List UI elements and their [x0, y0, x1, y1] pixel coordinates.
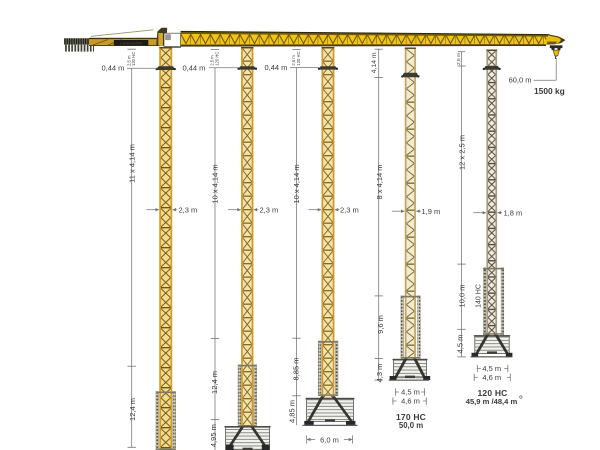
svg-text:4,5 m: 4,5 m	[482, 364, 501, 373]
svg-text:140 HC: 140 HC	[476, 284, 483, 308]
svg-text:LIEBHERR: LIEBHERR	[120, 40, 143, 45]
svg-text:1500 kg: 1500 kg	[534, 86, 565, 96]
svg-text:2,5 m: 2,5 m	[456, 53, 462, 65]
svg-text:11 x 4,14 m: 11 x 4,14 m	[127, 144, 136, 183]
svg-text:0,44 m: 0,44 m	[102, 63, 125, 72]
svg-text:12,4 m: 12,4 m	[210, 371, 219, 394]
svg-text:12 x 2,5 m: 12 x 2,5 m	[458, 135, 467, 170]
svg-text:4,95 m: 4,95 m	[209, 424, 218, 447]
svg-text:8,85 m: 8,85 m	[292, 358, 301, 381]
svg-text:8 x 4,14 m: 8 x 4,14 m	[375, 164, 384, 199]
svg-text:10 x 4,14 m: 10 x 4,14 m	[211, 164, 220, 203]
svg-text:4,6 m: 4,6 m	[482, 373, 501, 382]
svg-text:4,14 m: 4,14 m	[371, 52, 378, 73]
svg-text:6,0 m: 6,0 m	[320, 435, 339, 444]
svg-text:1,9 m: 1,9 m	[422, 207, 441, 216]
svg-text:2,3 m: 2,3 m	[179, 205, 198, 214]
svg-text:120 HC: 120 HC	[214, 52, 219, 66]
svg-text:4,5 m: 4,5 m	[401, 388, 420, 397]
svg-text:2,3 m: 2,3 m	[340, 205, 359, 214]
svg-text:12,4 m: 12,4 m	[128, 398, 137, 421]
svg-text:50,0 m: 50,0 m	[399, 421, 423, 430]
svg-text:9,6 m: 9,6 m	[376, 315, 385, 334]
svg-text:10,0 m: 10,0 m	[458, 285, 467, 308]
svg-text:0,44 m: 0,44 m	[265, 63, 288, 72]
svg-text:120 HC: 120 HC	[131, 52, 136, 66]
svg-text:4,3 m: 4,3 m	[375, 364, 384, 383]
svg-text:2,3 m: 2,3 m	[260, 205, 279, 214]
svg-text:60,0 m: 60,0 m	[509, 76, 532, 85]
svg-text:120 HC: 120 HC	[296, 51, 301, 65]
svg-text:4,85 m: 4,85 m	[288, 400, 297, 423]
svg-text:0,44 m: 0,44 m	[183, 63, 206, 72]
svg-text:10 x 4,14 m: 10 x 4,14 m	[292, 164, 301, 203]
svg-text:4,6 m: 4,6 m	[401, 397, 420, 406]
svg-text:1,8 m: 1,8 m	[504, 208, 523, 217]
svg-text:45,9 m /48,4 m: 45,9 m /48,4 m	[466, 397, 518, 406]
svg-text:O: O	[519, 395, 523, 400]
svg-text:4,5 m: 4,5 m	[455, 335, 464, 354]
